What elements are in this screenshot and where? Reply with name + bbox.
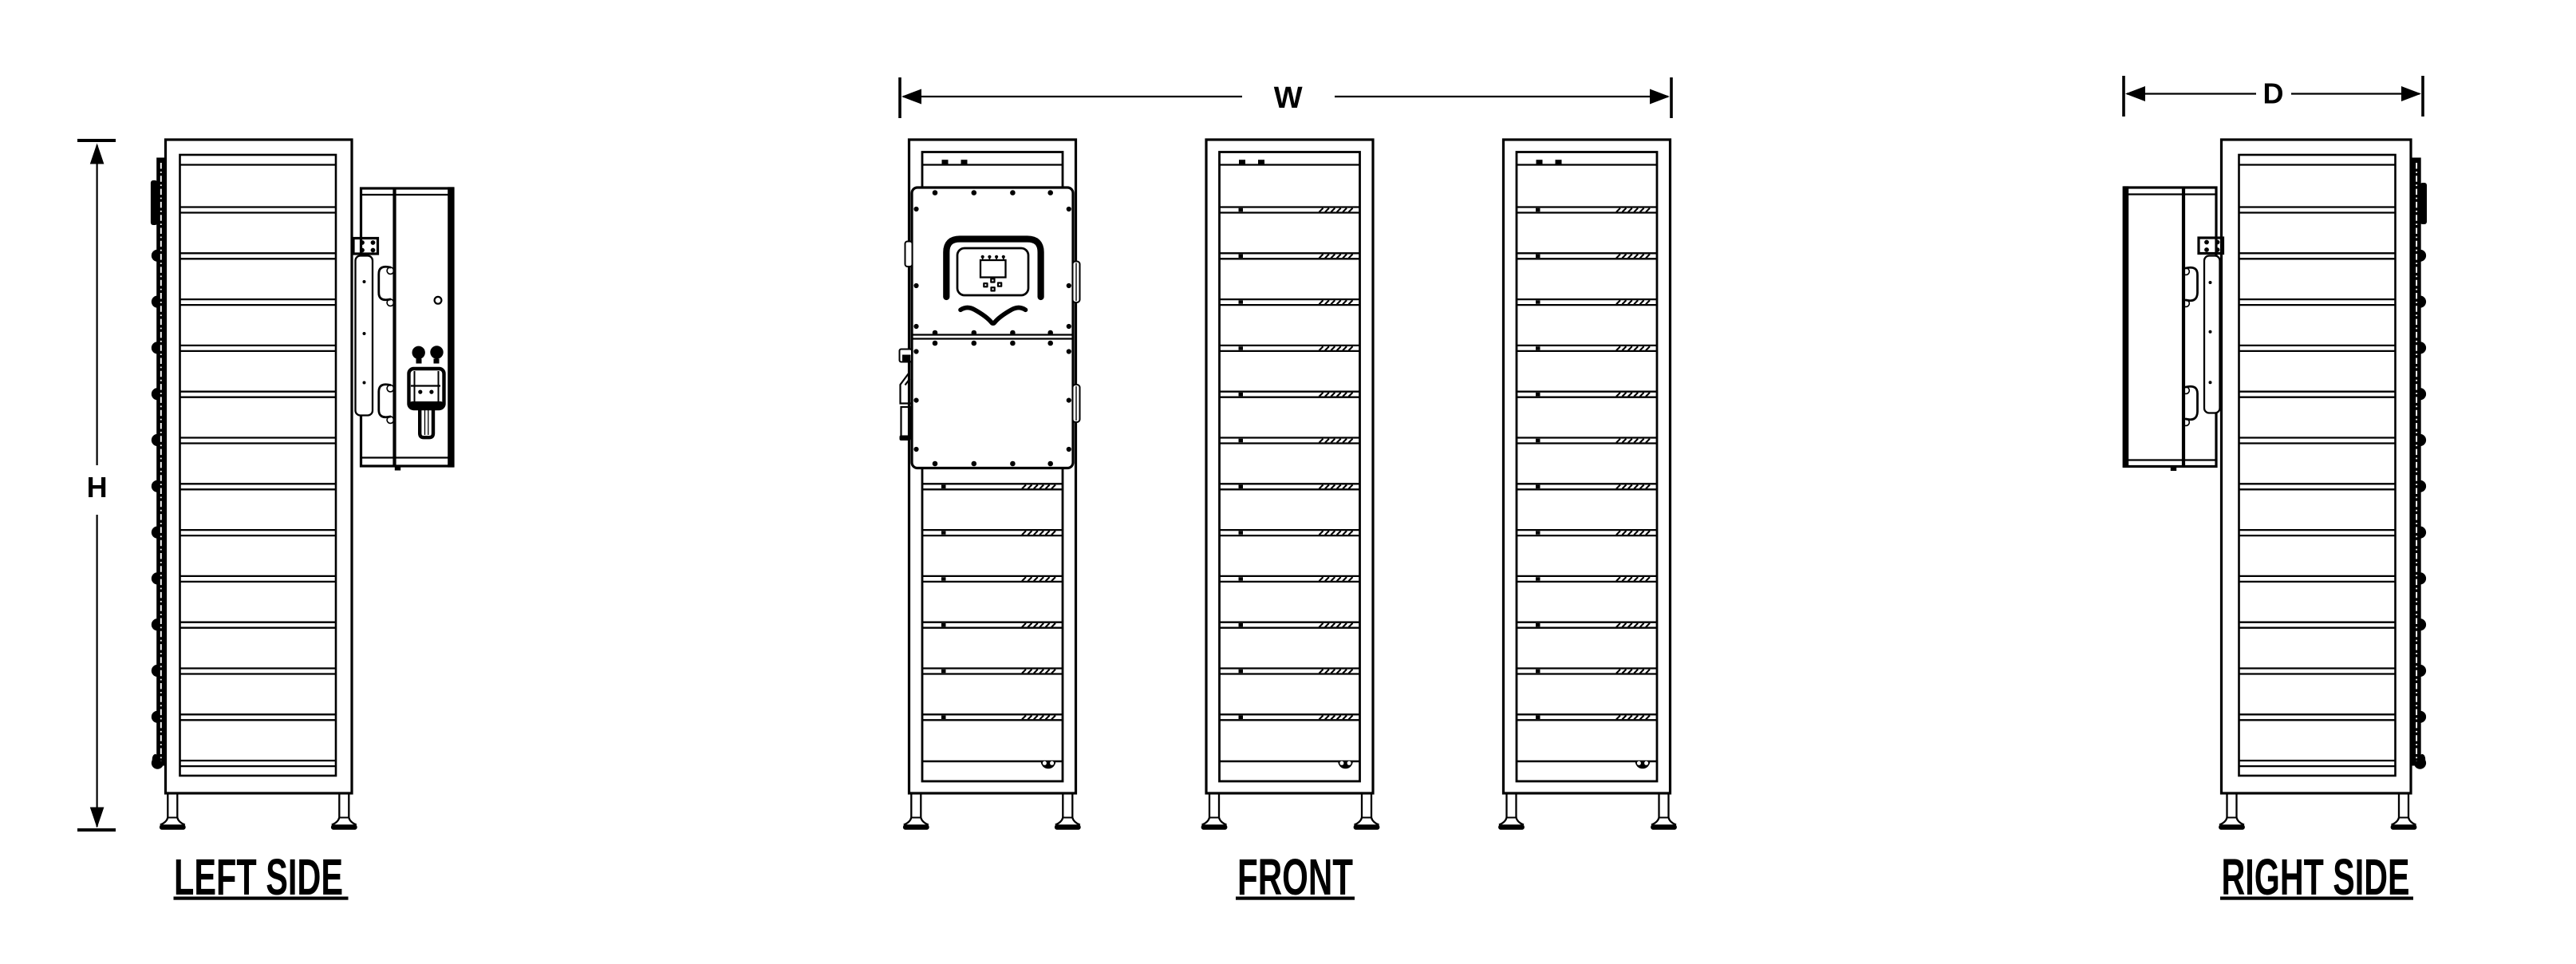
svg-text:D: D <box>2263 77 2284 110</box>
svg-text:W: W <box>1274 81 1303 115</box>
svg-text:H: H <box>87 471 108 504</box>
